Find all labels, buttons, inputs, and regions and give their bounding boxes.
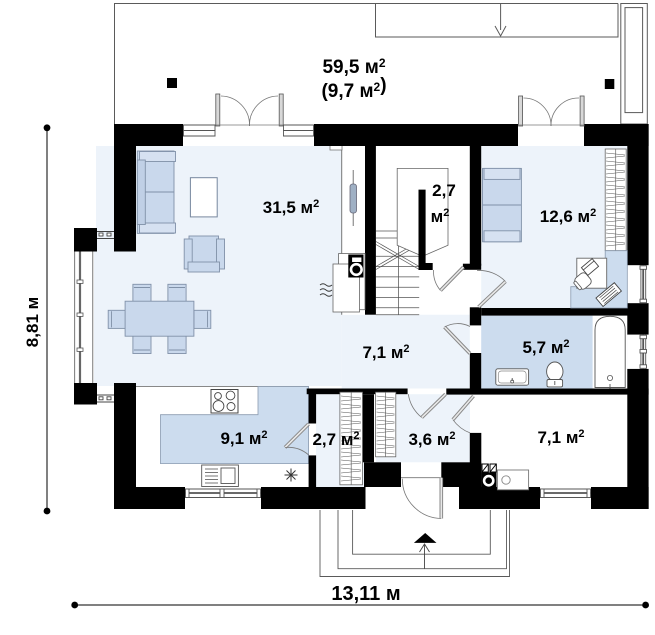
svg-text:2,7 м2: 2,7 м2: [312, 430, 359, 449]
svg-text:31,5 м2: 31,5 м2: [263, 198, 320, 217]
svg-text:12,6 м2: 12,6 м2: [540, 207, 597, 226]
svg-text:5,7 м2: 5,7 м2: [522, 338, 569, 357]
svg-text:13,11 м: 13,11 м: [331, 583, 400, 605]
svg-text:2,7: 2,7: [432, 181, 456, 200]
svg-text:3,6 м2: 3,6 м2: [408, 430, 455, 449]
svg-text:7,1 м2: 7,1 м2: [537, 428, 584, 447]
svg-text:59,5 м2: 59,5 м2: [322, 56, 385, 78]
svg-text:7,1 м2: 7,1 м2: [362, 343, 409, 362]
svg-text:9,1 м2: 9,1 м2: [220, 429, 267, 448]
svg-text:8,81 м: 8,81 м: [23, 297, 42, 347]
